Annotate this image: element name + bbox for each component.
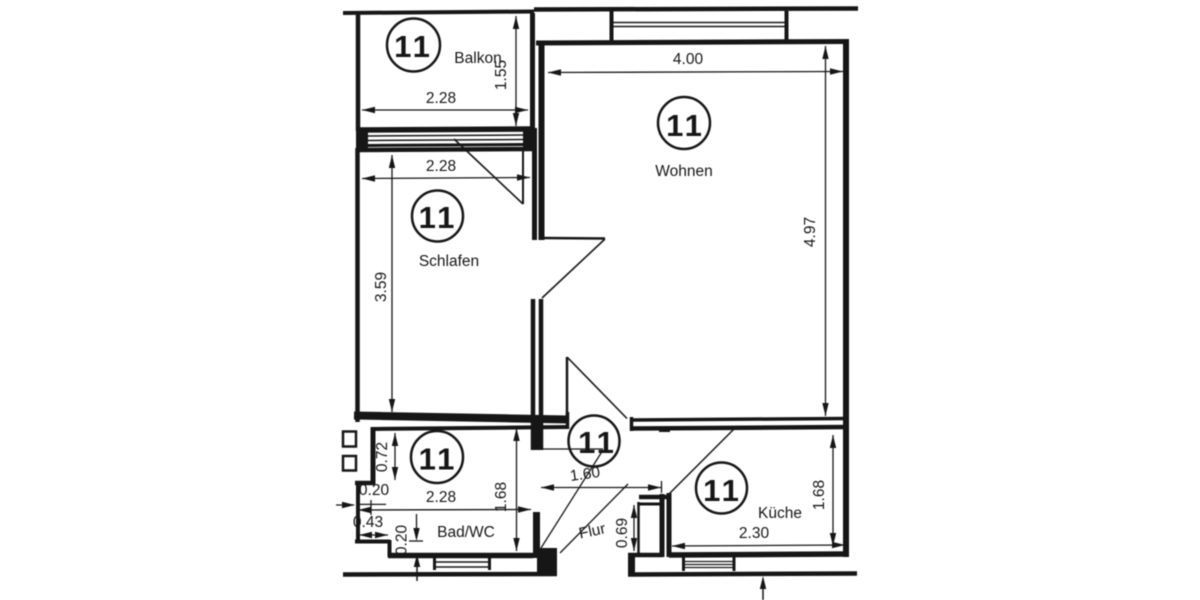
svg-text:11: 11 xyxy=(578,425,617,460)
svg-text:Bad/WC: Bad/WC xyxy=(437,524,495,541)
svg-text:1.68: 1.68 xyxy=(811,480,828,510)
svg-text:0.69: 0.69 xyxy=(614,518,631,548)
svg-text:Wohnen: Wohnen xyxy=(655,163,712,180)
svg-text:2.28: 2.28 xyxy=(426,489,456,506)
svg-text:0.43: 0.43 xyxy=(353,514,383,531)
svg-text:0.20: 0.20 xyxy=(359,482,390,499)
svg-text:2.30: 2.30 xyxy=(739,525,770,542)
svg-text:4.00: 4.00 xyxy=(673,51,704,68)
svg-text:0.20: 0.20 xyxy=(394,525,411,556)
svg-text:4.97: 4.97 xyxy=(802,217,819,247)
svg-text:11: 11 xyxy=(419,442,458,477)
svg-text:11: 11 xyxy=(419,200,458,235)
svg-text:11: 11 xyxy=(394,29,433,64)
svg-text:1.68: 1.68 xyxy=(493,482,510,512)
svg-text:11: 11 xyxy=(666,108,705,143)
svg-text:2.28: 2.28 xyxy=(426,158,456,175)
svg-text:0.72: 0.72 xyxy=(374,442,391,472)
svg-text:Küche: Küche xyxy=(758,505,802,522)
svg-text:3.59: 3.59 xyxy=(373,272,390,302)
svg-text:1.55: 1.55 xyxy=(493,60,510,90)
svg-text:2.28: 2.28 xyxy=(426,90,456,107)
svg-text:Schlafen: Schlafen xyxy=(419,253,479,270)
svg-text:11: 11 xyxy=(703,473,742,508)
